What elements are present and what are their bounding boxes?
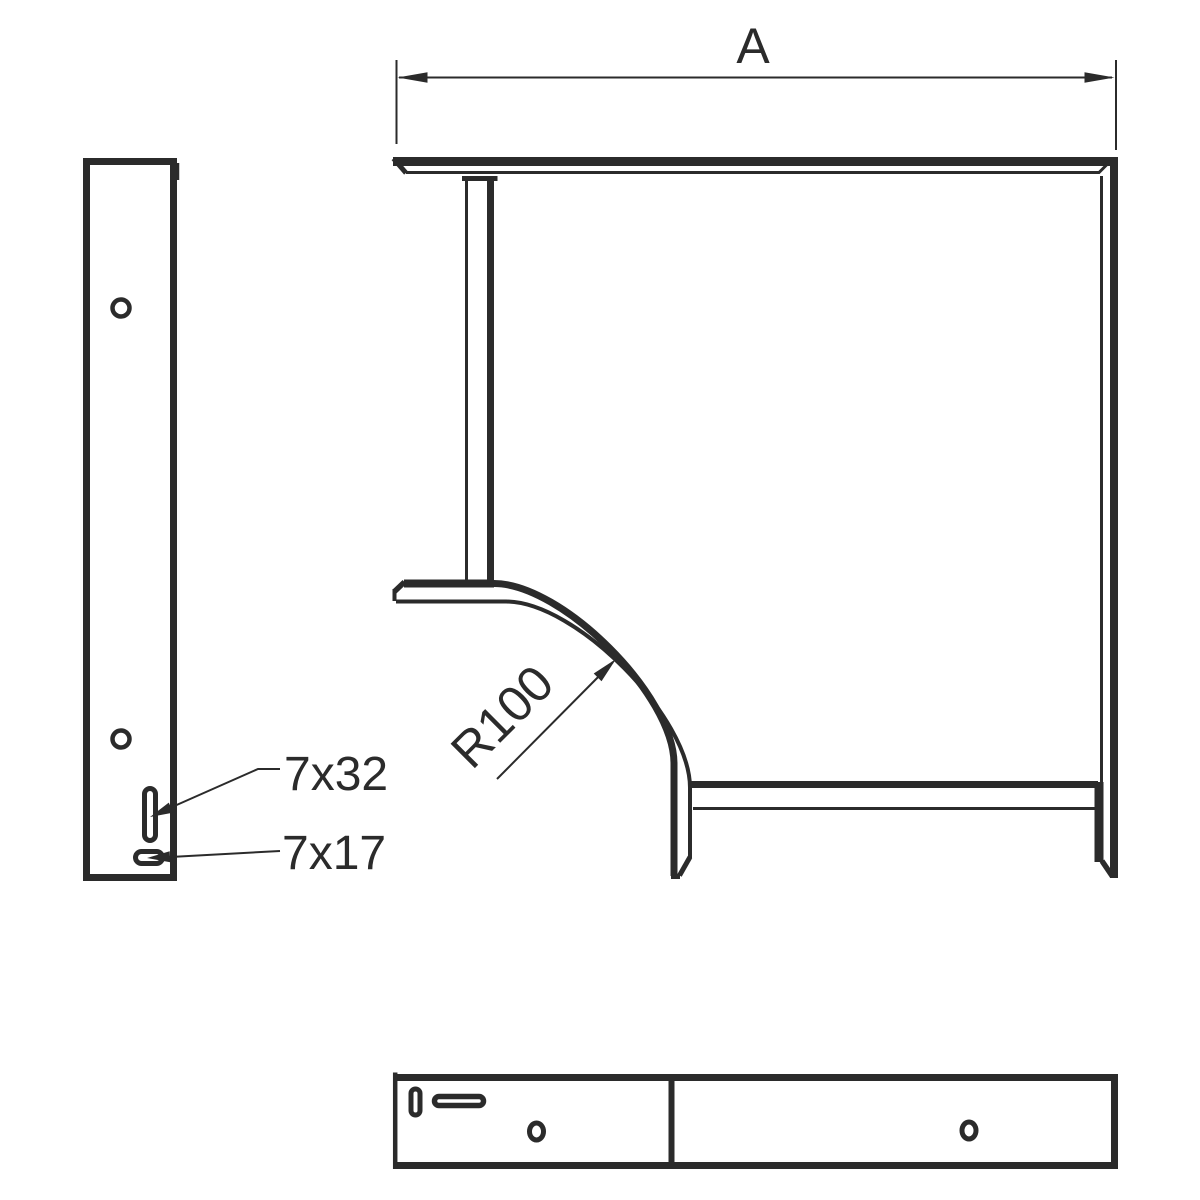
- arrow-radius-icon: [594, 655, 620, 681]
- arrow-right-icon: [1085, 72, 1115, 82]
- slot-horizontal-label: 7x17: [282, 827, 386, 880]
- bend-strip-bottom-bevel: [680, 857, 691, 876]
- bottom-view-slot-long: [435, 1097, 484, 1106]
- bottom-view-hole-left: [530, 1123, 544, 1140]
- dimension-a-label: A: [736, 18, 770, 74]
- dimension-a: A: [397, 18, 1117, 150]
- hole-top: [113, 300, 130, 317]
- arrow-7x32-icon: [148, 803, 173, 822]
- technical-drawing: 7x32 7x17 A: [0, 0, 1200, 1200]
- hole-bottom: [113, 731, 130, 748]
- side-view-outline: [87, 162, 174, 878]
- side-view: [87, 162, 179, 878]
- technical-drawing-page: 7x32 7x17 A: [0, 0, 1200, 1200]
- bottom-view: [393, 1073, 1118, 1170]
- radius-label: R100: [440, 655, 564, 779]
- bottom-view-slot-end: [411, 1089, 420, 1115]
- bottom-view-hole-right: [962, 1122, 976, 1139]
- plan-view: [393, 157, 1114, 878]
- radius-callout: R100: [440, 655, 620, 779]
- slot-callouts: 7x32 7x17: [147, 748, 388, 880]
- slot-vertical-label: 7x32: [284, 748, 388, 801]
- arrow-left-icon: [398, 72, 428, 82]
